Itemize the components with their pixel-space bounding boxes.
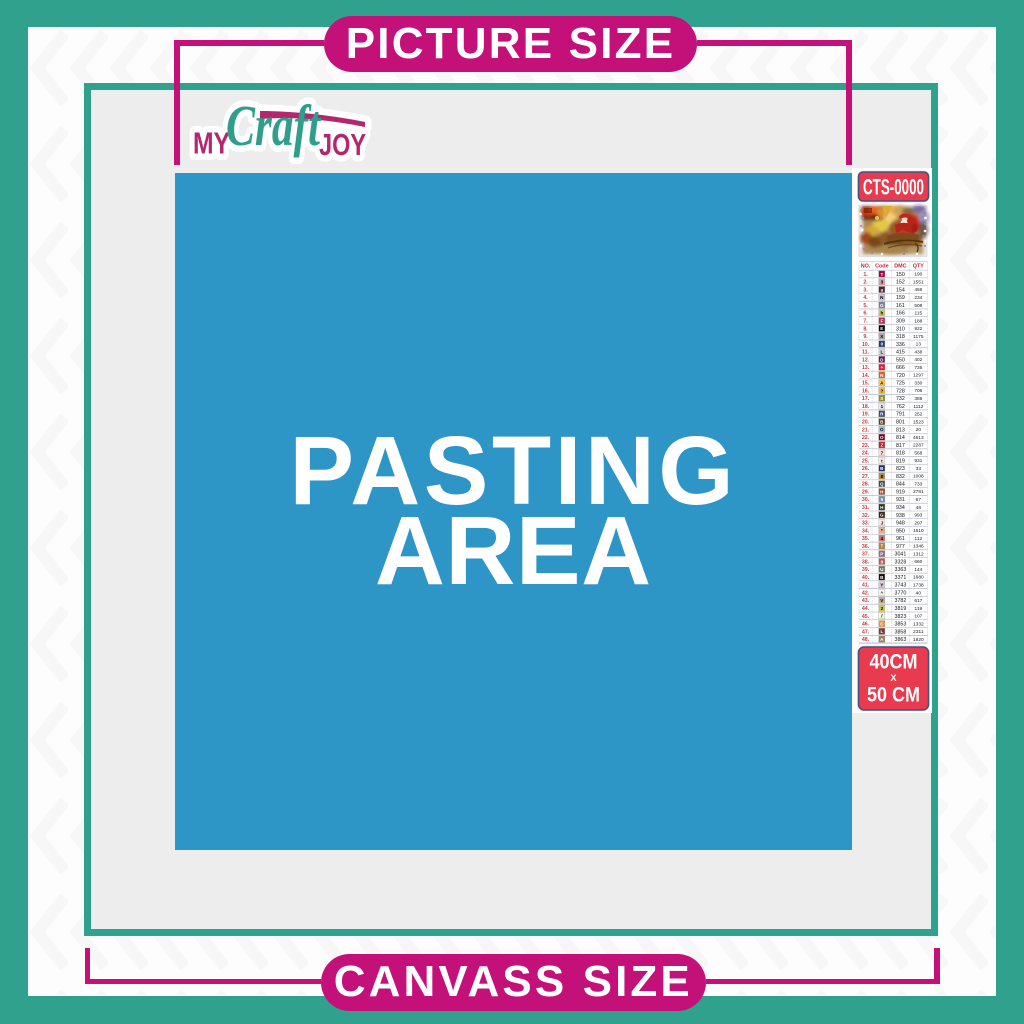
- svg-text:844: 844: [895, 481, 904, 487]
- svg-text:12.: 12.: [861, 357, 869, 363]
- svg-text:14.: 14.: [861, 372, 869, 378]
- svg-text:13: 13: [915, 341, 921, 347]
- svg-text:?: ?: [880, 388, 883, 393]
- svg-text:666: 666: [895, 365, 904, 371]
- svg-text:948: 948: [895, 520, 904, 526]
- svg-text:38.: 38.: [861, 559, 869, 565]
- svg-text:29.: 29.: [861, 489, 869, 495]
- svg-text:466: 466: [914, 287, 922, 293]
- svg-text:166: 166: [895, 310, 904, 316]
- svg-text:732: 732: [895, 396, 904, 402]
- svg-text:309: 309: [895, 318, 904, 324]
- svg-text:18.: 18.: [861, 403, 869, 409]
- svg-text:508: 508: [914, 302, 922, 308]
- svg-text:234: 234: [914, 294, 922, 300]
- svg-text:40: 40: [915, 590, 921, 596]
- svg-text:1523: 1523: [913, 419, 924, 425]
- svg-text:33.: 33.: [861, 520, 869, 526]
- svg-text:O: O: [880, 434, 884, 439]
- svg-text:Y: Y: [880, 582, 883, 587]
- svg-text:0: 0: [880, 341, 883, 346]
- svg-text:F: F: [880, 318, 883, 323]
- svg-text:44.: 44.: [861, 605, 869, 611]
- svg-text:823: 823: [895, 466, 904, 472]
- svg-text:1510: 1510: [913, 528, 924, 534]
- svg-text:2311: 2311: [913, 629, 924, 635]
- svg-text:*: *: [880, 528, 882, 533]
- svg-text:48: 48: [915, 504, 921, 510]
- svg-text:P: P: [880, 551, 883, 556]
- svg-text:733: 733: [914, 481, 922, 487]
- svg-text:40.: 40.: [861, 574, 869, 580]
- svg-text:725: 725: [895, 380, 904, 386]
- svg-text:T: T: [880, 543, 883, 548]
- svg-text:1112: 1112: [913, 403, 923, 409]
- svg-text:144: 144: [914, 566, 922, 572]
- svg-text:931: 931: [914, 458, 922, 464]
- svg-text:152: 152: [895, 279, 904, 285]
- svg-text:5: 5: [880, 497, 883, 502]
- svg-text:931: 931: [895, 497, 904, 503]
- svg-text:817: 817: [895, 442, 904, 448]
- svg-text:33: 33: [915, 465, 921, 471]
- svg-text:7.: 7.: [863, 318, 868, 324]
- svg-text:438: 438: [914, 349, 922, 355]
- svg-text:720: 720: [895, 372, 904, 378]
- svg-text:318: 318: [895, 334, 904, 340]
- svg-text:17.: 17.: [861, 396, 869, 402]
- svg-text:8.: 8.: [863, 326, 868, 332]
- svg-text:3823: 3823: [894, 613, 906, 619]
- svg-text:S: S: [880, 396, 883, 401]
- svg-text:4.: 4.: [863, 295, 868, 301]
- svg-text:2781: 2781: [913, 489, 924, 495]
- svg-text:791: 791: [895, 411, 904, 417]
- svg-text:19.: 19.: [861, 411, 869, 417]
- svg-text:310: 310: [895, 326, 904, 332]
- svg-text:J: J: [880, 520, 883, 525]
- svg-text:46.: 46.: [861, 621, 869, 627]
- svg-text:3858: 3858: [894, 629, 906, 635]
- svg-text:1820: 1820: [913, 636, 924, 642]
- svg-text:801: 801: [895, 419, 904, 425]
- svg-text:568: 568: [914, 450, 922, 456]
- svg-text:154: 154: [895, 287, 904, 293]
- svg-text:3770: 3770: [894, 590, 906, 596]
- svg-text:1.: 1.: [863, 271, 868, 277]
- svg-text:X: X: [890, 673, 896, 683]
- svg-text:950: 950: [895, 528, 904, 534]
- svg-text:1346: 1346: [913, 543, 924, 549]
- svg-text:48.: 48.: [861, 637, 869, 643]
- svg-text:8: 8: [880, 473, 883, 478]
- svg-text:Craft: Craft: [226, 95, 321, 158]
- svg-text:3: 3: [880, 279, 883, 284]
- svg-text:47.: 47.: [861, 629, 869, 635]
- svg-text:813: 813: [895, 427, 904, 433]
- svg-text:23.: 23.: [861, 442, 869, 448]
- svg-text:115: 115: [914, 310, 922, 316]
- svg-text:a: a: [880, 287, 883, 292]
- svg-text:112: 112: [914, 535, 922, 541]
- svg-text:1332: 1332: [913, 621, 924, 627]
- svg-text:388: 388: [914, 396, 922, 402]
- svg-text:5.: 5.: [863, 302, 868, 308]
- svg-text:3041: 3041: [894, 551, 906, 557]
- svg-text:161: 161: [895, 302, 904, 308]
- svg-text:13.: 13.: [861, 365, 869, 371]
- svg-text:550: 550: [895, 357, 904, 363]
- svg-text:3743: 3743: [894, 582, 906, 588]
- svg-text:67: 67: [915, 497, 921, 503]
- svg-text:762: 762: [895, 403, 904, 409]
- svg-text:977: 977: [895, 543, 904, 549]
- svg-text:9.: 9.: [863, 334, 868, 340]
- svg-text:22.: 22.: [861, 435, 869, 441]
- svg-text:4613: 4613: [913, 434, 924, 440]
- svg-text:G: G: [880, 512, 884, 517]
- svg-text:818: 818: [895, 450, 904, 456]
- svg-text:934: 934: [895, 504, 904, 510]
- svg-text:24.: 24.: [861, 450, 869, 456]
- svg-text:1551: 1551: [913, 279, 924, 285]
- svg-text:1297: 1297: [913, 372, 924, 378]
- svg-text:1175: 1175: [913, 333, 924, 339]
- svg-text:3853: 3853: [894, 621, 906, 627]
- svg-text:25.: 25.: [861, 458, 869, 464]
- svg-text:DMC: DMC: [894, 263, 906, 269]
- svg-text:706: 706: [914, 388, 922, 394]
- svg-text:11.: 11.: [862, 349, 870, 355]
- svg-text:35.: 35.: [861, 536, 869, 542]
- svg-text:E: E: [880, 326, 883, 331]
- svg-text:2287: 2287: [913, 442, 924, 448]
- svg-text:961: 961: [895, 536, 904, 542]
- svg-text:1: 1: [880, 403, 883, 408]
- svg-text:27.: 27.: [861, 473, 869, 479]
- svg-text:660: 660: [914, 559, 922, 565]
- svg-text:107: 107: [914, 613, 922, 619]
- svg-text:7: 7: [880, 450, 883, 455]
- svg-text:9: 9: [880, 559, 883, 564]
- svg-text:3819: 3819: [894, 605, 906, 611]
- svg-text:1738: 1738: [913, 582, 924, 588]
- svg-text:Q: Q: [880, 481, 884, 486]
- svg-text:336: 336: [895, 341, 904, 347]
- svg-text:31.: 31.: [861, 504, 869, 510]
- svg-text:922: 922: [914, 326, 922, 332]
- svg-text:h: h: [880, 310, 883, 315]
- svg-text:21.: 21.: [861, 427, 869, 433]
- svg-text:617: 617: [914, 598, 922, 604]
- svg-text:42.: 42.: [861, 590, 869, 596]
- svg-text:G: G: [880, 302, 884, 307]
- svg-text:NO.: NO.: [860, 263, 870, 269]
- svg-text:3782: 3782: [894, 598, 906, 604]
- svg-text:Code: Code: [875, 263, 888, 269]
- svg-text:3371: 3371: [894, 574, 906, 580]
- svg-text:41.: 41.: [861, 582, 869, 588]
- svg-text:938: 938: [895, 512, 904, 518]
- svg-text:252: 252: [914, 411, 922, 417]
- svg-text:+: +: [880, 365, 883, 370]
- svg-text:1312: 1312: [913, 551, 924, 557]
- svg-text:20.: 20.: [861, 419, 869, 425]
- svg-text:16.: 16.: [861, 388, 869, 394]
- svg-text:1680: 1680: [913, 574, 924, 580]
- svg-text:3328: 3328: [894, 559, 906, 565]
- svg-text:MY: MY: [193, 126, 230, 161]
- svg-text:919: 919: [895, 489, 904, 495]
- svg-text:993: 993: [914, 512, 922, 518]
- svg-text:3.: 3.: [863, 287, 868, 293]
- svg-text:832: 832: [895, 473, 904, 479]
- svg-text:3363: 3363: [894, 567, 906, 573]
- svg-text:119: 119: [914, 605, 922, 611]
- svg-text:32.: 32.: [861, 512, 869, 518]
- svg-text:QTY: QTY: [912, 263, 923, 269]
- svg-text:43.: 43.: [861, 598, 869, 604]
- svg-text:297: 297: [914, 520, 922, 526]
- svg-text:26.: 26.: [861, 466, 869, 472]
- svg-text:JOY: JOY: [319, 127, 366, 162]
- svg-text:L: L: [880, 629, 883, 634]
- svg-text:^: ^: [880, 590, 883, 595]
- svg-text:CTS-0000: CTS-0000: [863, 174, 924, 199]
- svg-text:2: 2: [880, 605, 883, 610]
- svg-text:50 CM: 50 CM: [867, 683, 920, 706]
- svg-text:1008: 1008: [913, 473, 924, 479]
- svg-text:39.: 39.: [861, 567, 869, 573]
- svg-text:20: 20: [915, 427, 921, 433]
- svg-text:6.: 6.: [863, 310, 868, 316]
- svg-text:3863: 3863: [894, 637, 906, 643]
- svg-text:819: 819: [895, 458, 904, 464]
- svg-text:330: 330: [914, 380, 922, 386]
- svg-text:188: 188: [914, 318, 922, 324]
- svg-text:10.: 10.: [861, 341, 869, 347]
- svg-text:37.: 37.: [861, 551, 869, 557]
- svg-text:402: 402: [914, 357, 922, 363]
- svg-text:15.: 15.: [861, 380, 869, 386]
- svg-text:36.: 36.: [861, 543, 869, 549]
- svg-text:814: 814: [895, 435, 904, 441]
- svg-text:T: T: [880, 271, 883, 276]
- svg-text:28.: 28.: [861, 481, 869, 487]
- svg-text:34.: 34.: [861, 528, 869, 534]
- svg-text:150: 150: [895, 271, 904, 277]
- svg-text:4: 4: [880, 535, 883, 540]
- svg-text:L: L: [880, 349, 883, 354]
- svg-text:159: 159: [895, 295, 904, 301]
- svg-text:735: 735: [914, 364, 922, 370]
- svg-text:O: O: [880, 427, 884, 432]
- svg-text:40CM: 40CM: [869, 650, 917, 673]
- svg-text:415: 415: [895, 349, 904, 355]
- svg-text:2.: 2.: [863, 279, 868, 285]
- svg-text:Z: Z: [880, 442, 883, 447]
- svg-text:190: 190: [914, 271, 922, 277]
- svg-text:30.: 30.: [861, 497, 869, 503]
- svg-text:728: 728: [895, 388, 904, 394]
- svg-text:45.: 45.: [861, 613, 869, 619]
